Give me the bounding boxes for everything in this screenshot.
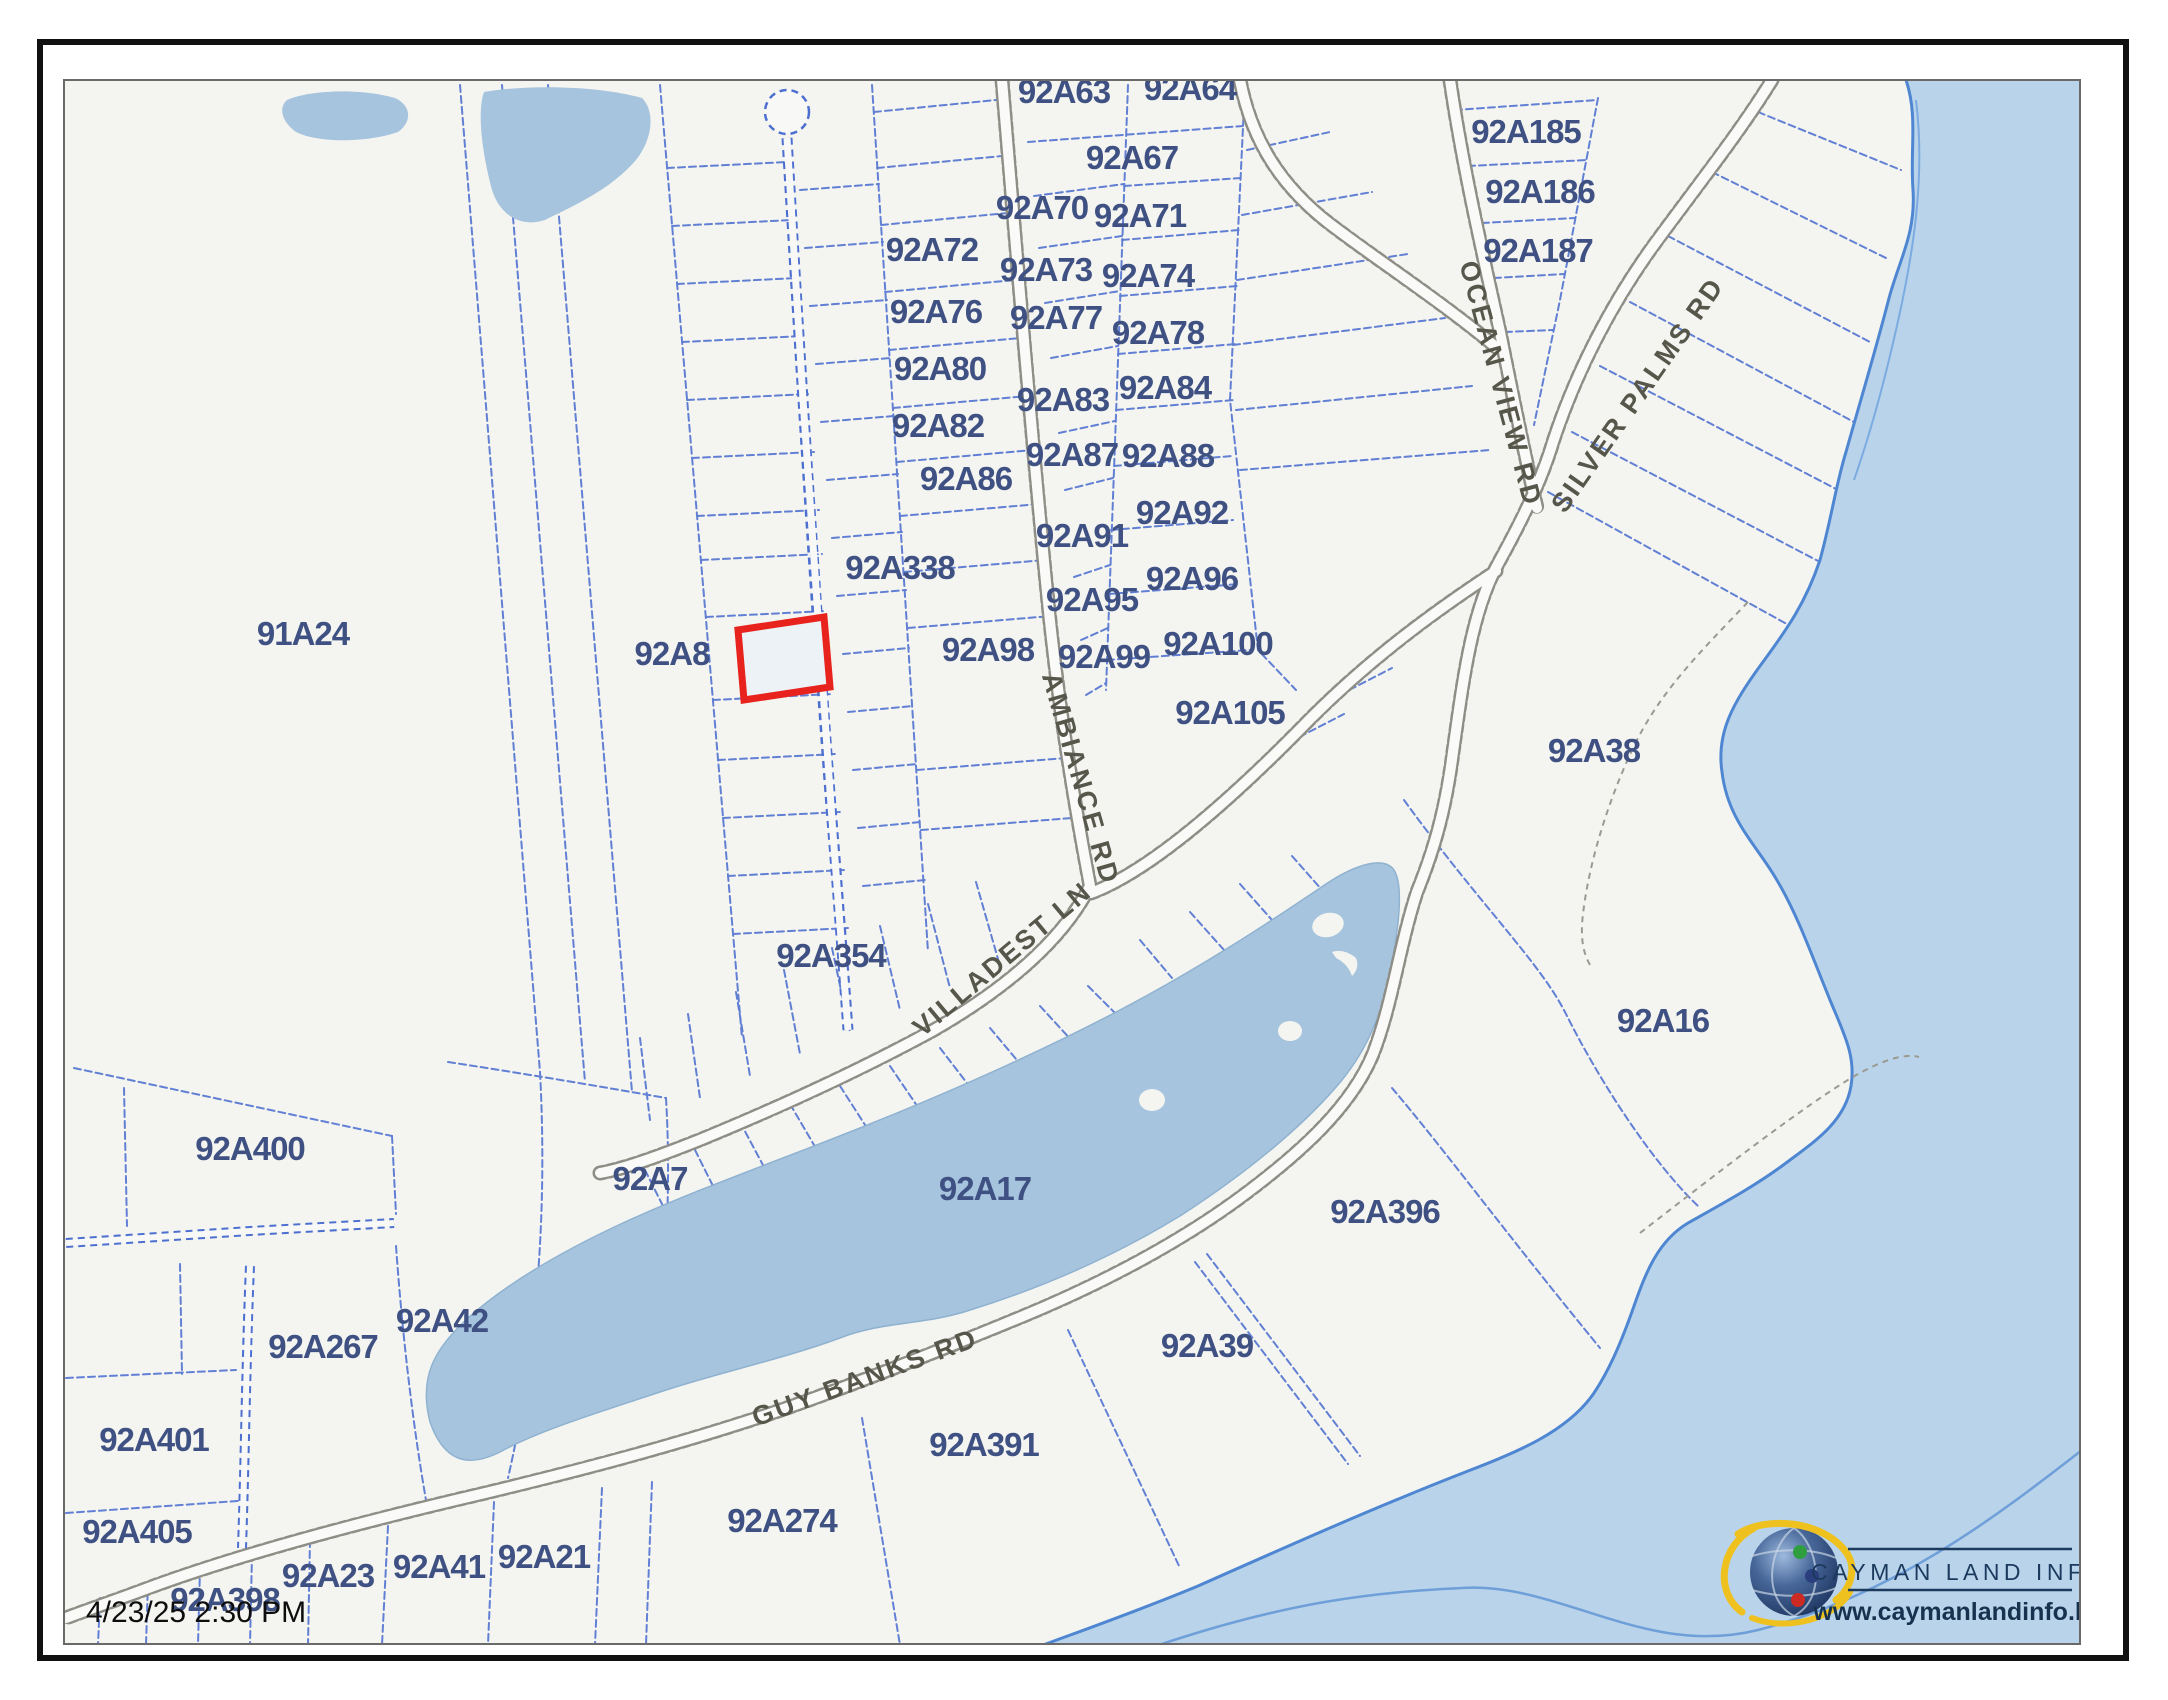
parcel-label-92A39[interactable]: 92A39 (1161, 1327, 1254, 1364)
parcel-label-92A74[interactable]: 92A74 (1102, 257, 1196, 294)
parcel-label-92A38[interactable]: 92A38 (1548, 732, 1641, 769)
parcel-label-92A41[interactable]: 92A41 (393, 1548, 486, 1585)
parcel-label-92A7[interactable]: 92A7 (613, 1160, 688, 1197)
parcel-label-92A83[interactable]: 92A83 (1017, 381, 1110, 418)
parcel-label-92A73[interactable]: 92A73 (1000, 251, 1093, 288)
parcel-label-92A42[interactable]: 92A42 (396, 1302, 489, 1339)
parcel-label-92A396[interactable]: 92A396 (1330, 1193, 1440, 1230)
parcel-label-92A105[interactable]: 92A105 (1175, 694, 1285, 731)
parcel-label-92A23[interactable]: 92A23 (282, 1557, 375, 1594)
parcel-label-92A186[interactable]: 92A186 (1485, 173, 1595, 210)
parcel-label-92A274[interactable]: 92A274 (727, 1502, 838, 1539)
parcel-label-92A87[interactable]: 92A87 (1026, 436, 1118, 473)
parcel-label-92A16[interactable]: 92A16 (1617, 1002, 1710, 1039)
parcel-label-92A21[interactable]: 92A21 (498, 1538, 591, 1575)
parcel-label-92A267[interactable]: 92A267 (268, 1328, 378, 1365)
parcel-label-92A72[interactable]: 92A72 (886, 231, 979, 268)
parcel-label-92A99[interactable]: 92A99 (1058, 638, 1151, 675)
parcel-label-92A67[interactable]: 92A67 (1086, 139, 1178, 176)
parcel-label-92A92[interactable]: 92A92 (1136, 494, 1229, 531)
pond-island (1139, 1089, 1165, 1111)
parcel-label-92A98[interactable]: 92A98 (942, 631, 1035, 668)
pond-island (1278, 1021, 1302, 1041)
selected-parcel-highlight[interactable] (738, 617, 830, 700)
parcel-label-92A391[interactable]: 92A391 (929, 1426, 1039, 1463)
parcel-label-92A100[interactable]: 92A100 (1163, 625, 1273, 662)
logo-url[interactable]: www.caymanlandinfo.ky (1812, 1598, 2103, 1626)
parcel-label-92A76[interactable]: 92A76 (890, 293, 983, 330)
parcel-label-92A70[interactable]: 92A70 (996, 189, 1088, 226)
parcel-label-92A8[interactable]: 92A8 (635, 635, 711, 672)
parcel-label-92A91[interactable]: 92A91 (1036, 517, 1129, 554)
parcel-label-92A80[interactable]: 92A80 (894, 350, 986, 387)
parcel-label-92A96[interactable]: 92A96 (1146, 560, 1239, 597)
parcel-label-92A86[interactable]: 92A86 (920, 460, 1013, 497)
parcel-label-92A185[interactable]: 92A185 (1471, 113, 1581, 150)
parcel-label-92A401[interactable]: 92A401 (99, 1421, 209, 1458)
parcel-label-92A95[interactable]: 92A95 (1046, 581, 1139, 618)
timestamp: 4/23/25 2:30 PM (86, 1596, 306, 1629)
parcel-label-92A17[interactable]: 92A17 (939, 1170, 1031, 1207)
parcel-label-92A77[interactable]: 92A77 (1010, 299, 1102, 336)
parcel-label-92A71[interactable]: 92A71 (1094, 197, 1187, 234)
parcel-label-92A354[interactable]: 92A354 (776, 937, 887, 974)
parcel-label-92A84[interactable]: 92A84 (1119, 369, 1213, 406)
parcel-label-91A24[interactable]: 91A24 (257, 615, 351, 652)
parcel-label-92A338[interactable]: 92A338 (845, 549, 955, 586)
parcel-label-92A405[interactable]: 92A405 (82, 1513, 192, 1550)
map-canvas[interactable]: 92A6392A6492A6792A7092A7192A7292A7392A74… (0, 0, 2168, 1700)
parcel-label-92A82[interactable]: 92A82 (892, 407, 985, 444)
parcel-label-92A400[interactable]: 92A400 (195, 1130, 305, 1167)
parcel-label-92A78[interactable]: 92A78 (1112, 314, 1205, 351)
parcel-label-92A187[interactable]: 92A187 (1483, 232, 1593, 269)
logo-title: CAYMAN LAND INFO (1811, 1559, 2109, 1585)
parcel-label-92A88[interactable]: 92A88 (1122, 437, 1215, 474)
